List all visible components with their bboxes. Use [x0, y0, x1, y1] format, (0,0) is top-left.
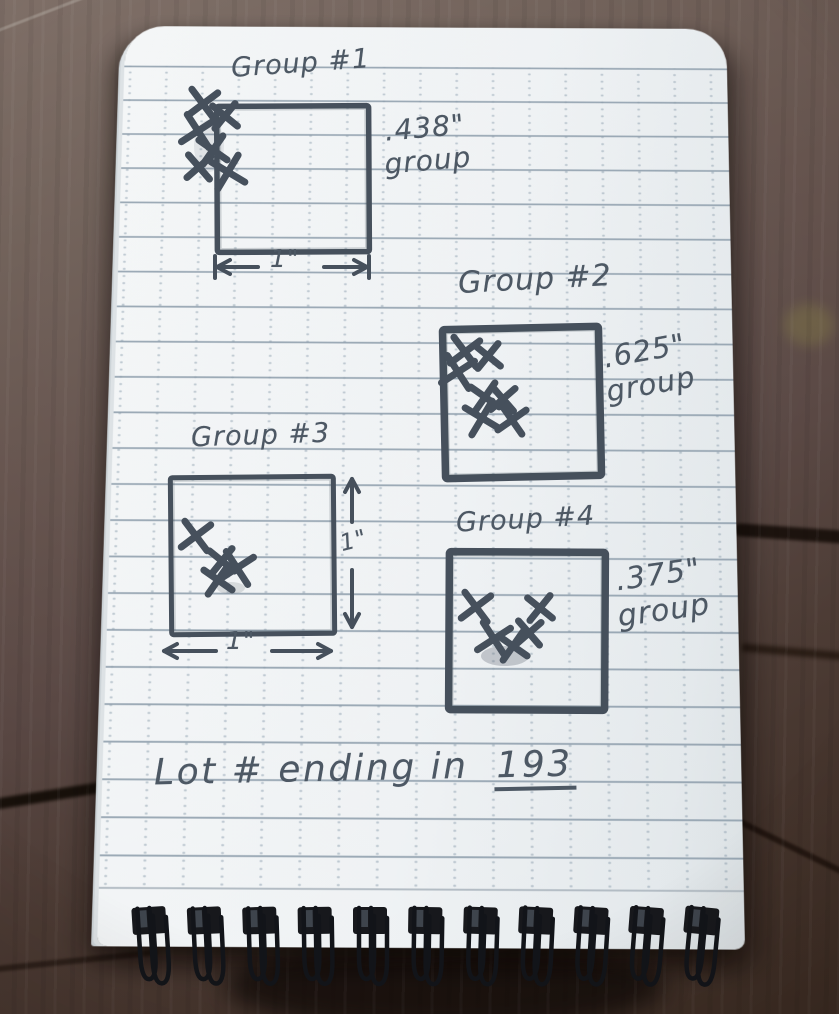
binding-wire-loop — [353, 907, 387, 984]
notepad-photo: Group #1 Group #2 Group #3 Group #4 .438… — [0, 0, 839, 1014]
binding-wire-loop — [461, 906, 497, 984]
binding-wire-loop — [407, 907, 442, 985]
group-4-size-label: .375" group — [614, 552, 713, 634]
group-3-title: Group #3 — [191, 418, 331, 454]
lot-number-value: 193 — [494, 744, 576, 792]
group-1-size-label: .438" group — [383, 108, 472, 180]
binding-wire-loop — [678, 906, 719, 986]
binding-wire-loop — [242, 906, 278, 984]
group-3-width-dimension-label: 1" — [226, 626, 255, 655]
group-4-shot-x-mark — [461, 592, 490, 621]
binding-wire-loop — [570, 906, 609, 985]
binding-wire-loop — [187, 906, 225, 985]
group-3-shot-x-mark — [181, 521, 210, 550]
binding-wire-loop — [516, 906, 554, 985]
lot-number-note: Lot # ending in 193 — [154, 744, 576, 794]
binding-wire-loop — [298, 907, 333, 985]
group-4-shot-x-mark — [528, 596, 553, 621]
group-1-width-dimension-label: 1" — [270, 244, 299, 273]
group-2-shot-x-mark — [476, 344, 501, 369]
binding-wire-loop — [624, 906, 664, 985]
binding-wire-loop — [131, 906, 170, 985]
lot-note-text: Lot # ending in — [154, 746, 469, 794]
